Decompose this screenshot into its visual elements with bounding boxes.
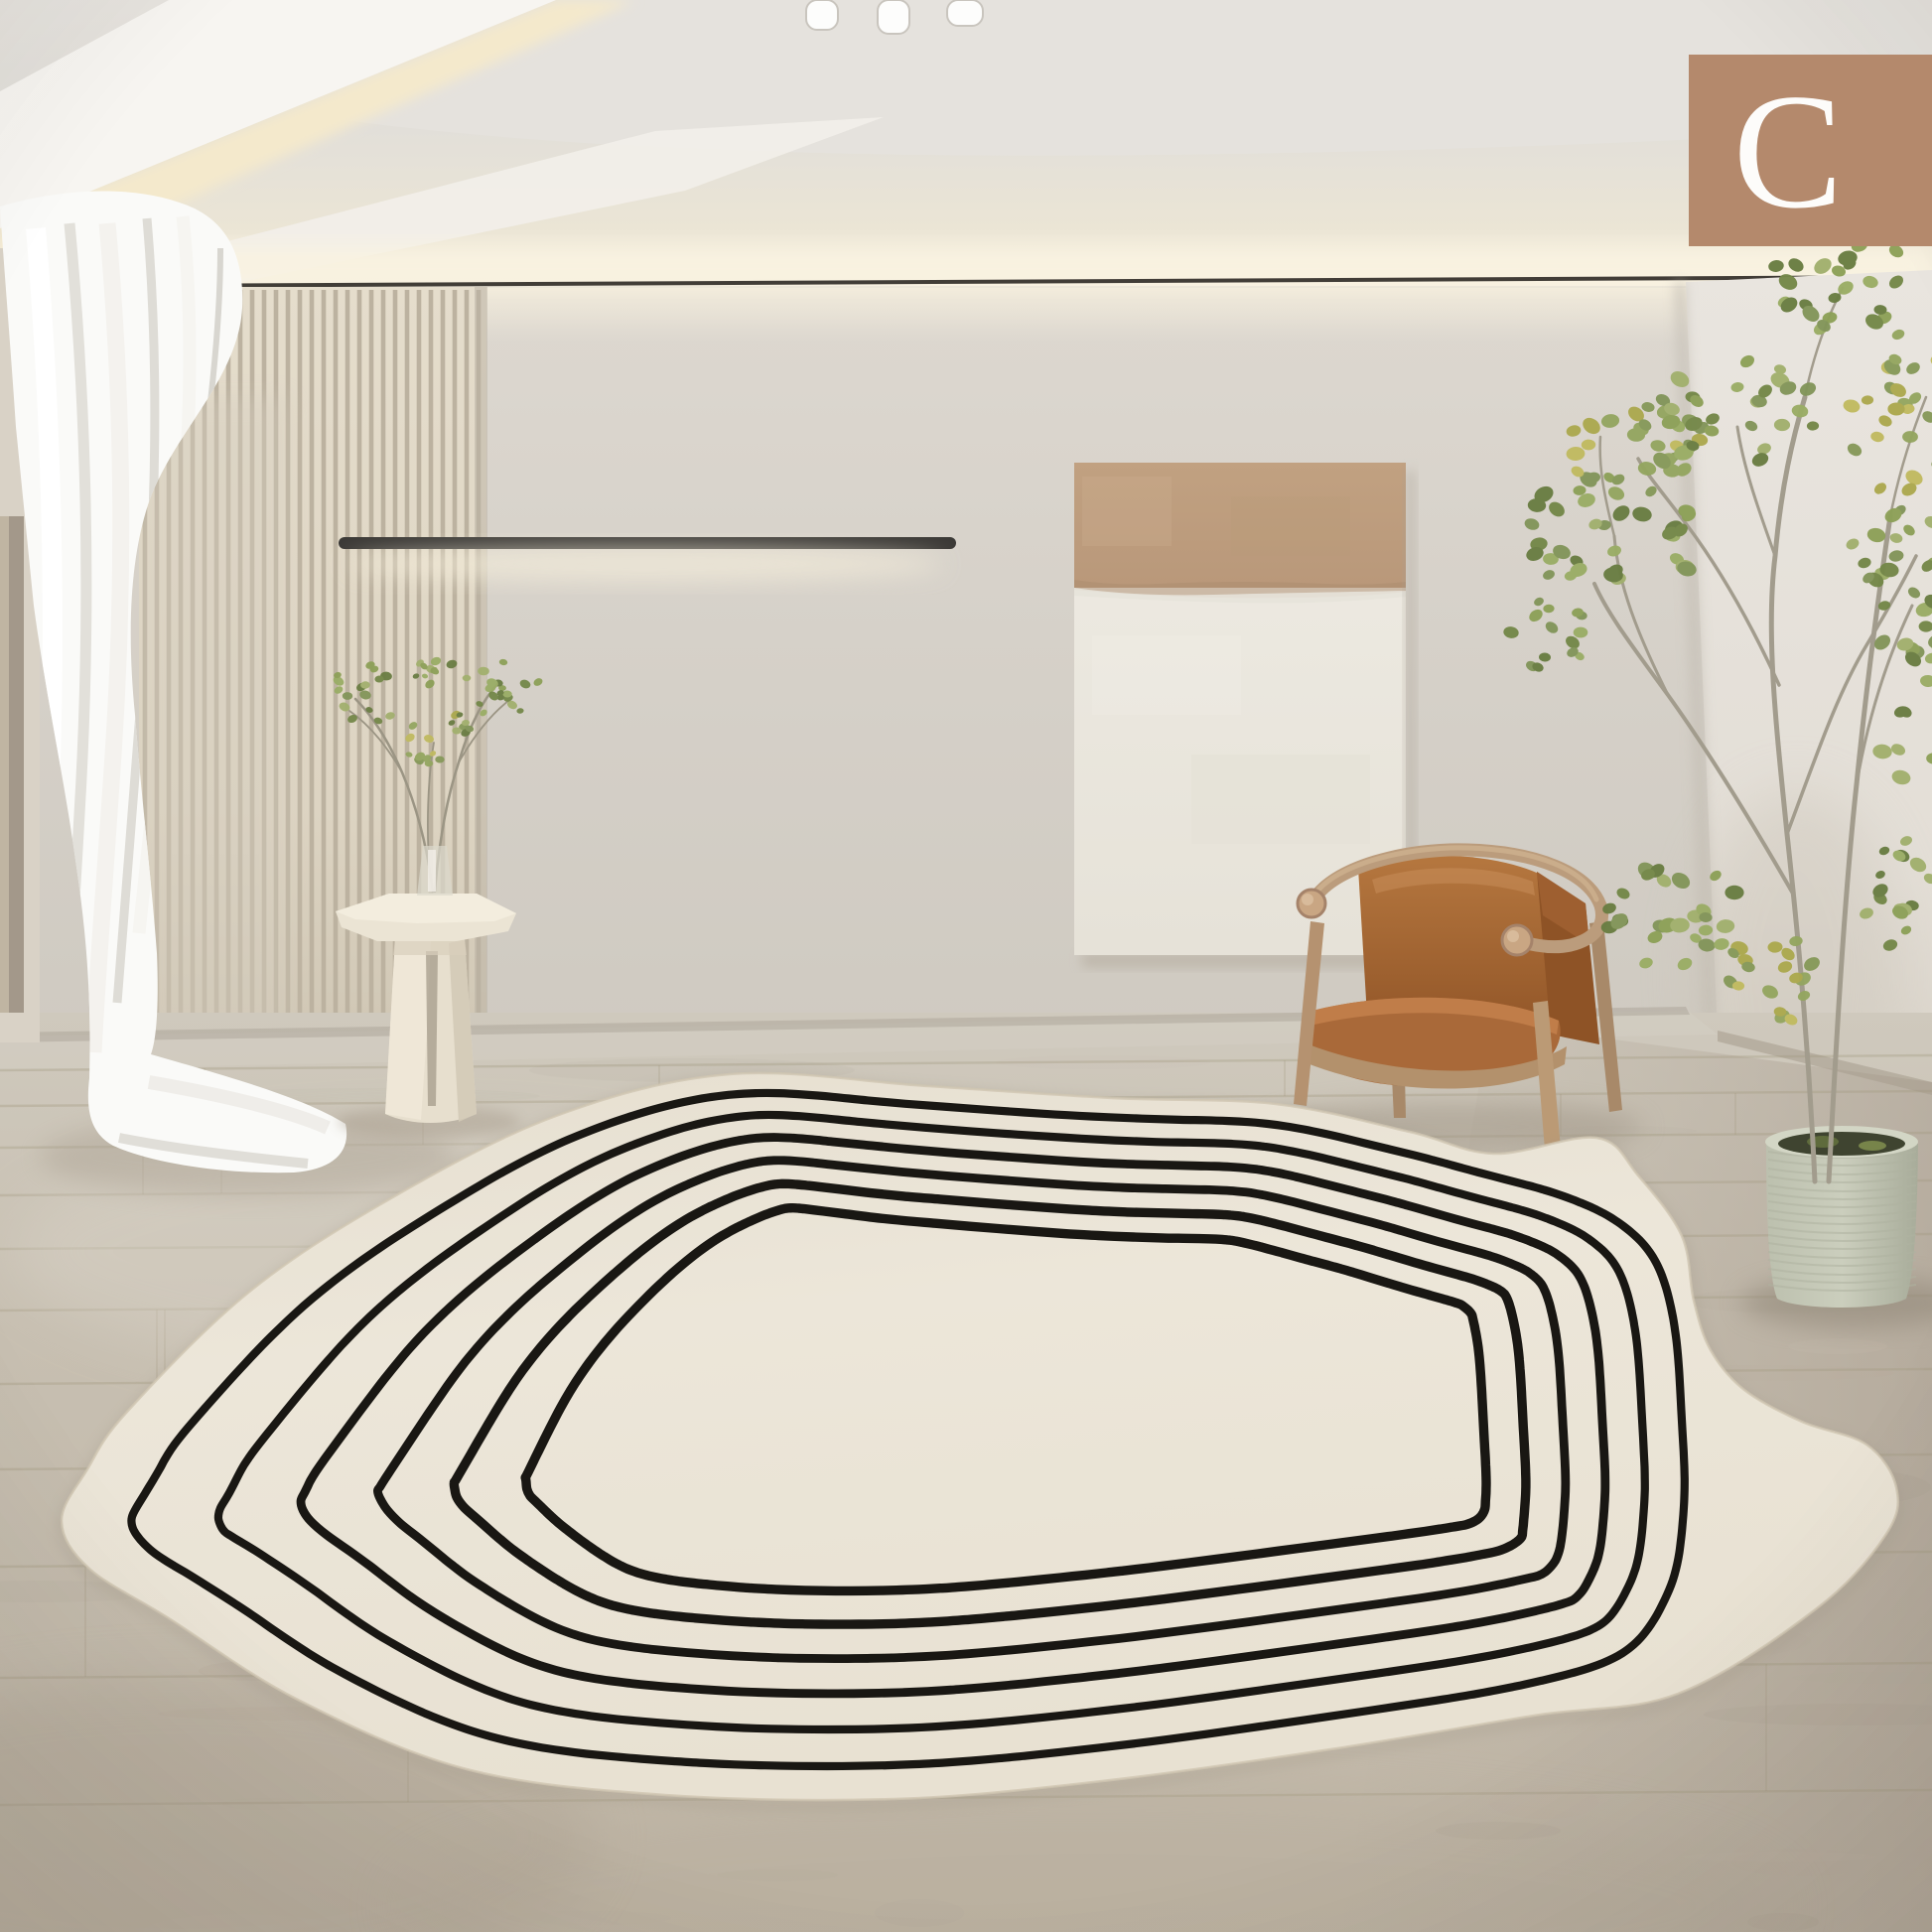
svg-text:C: C [1733, 60, 1844, 242]
